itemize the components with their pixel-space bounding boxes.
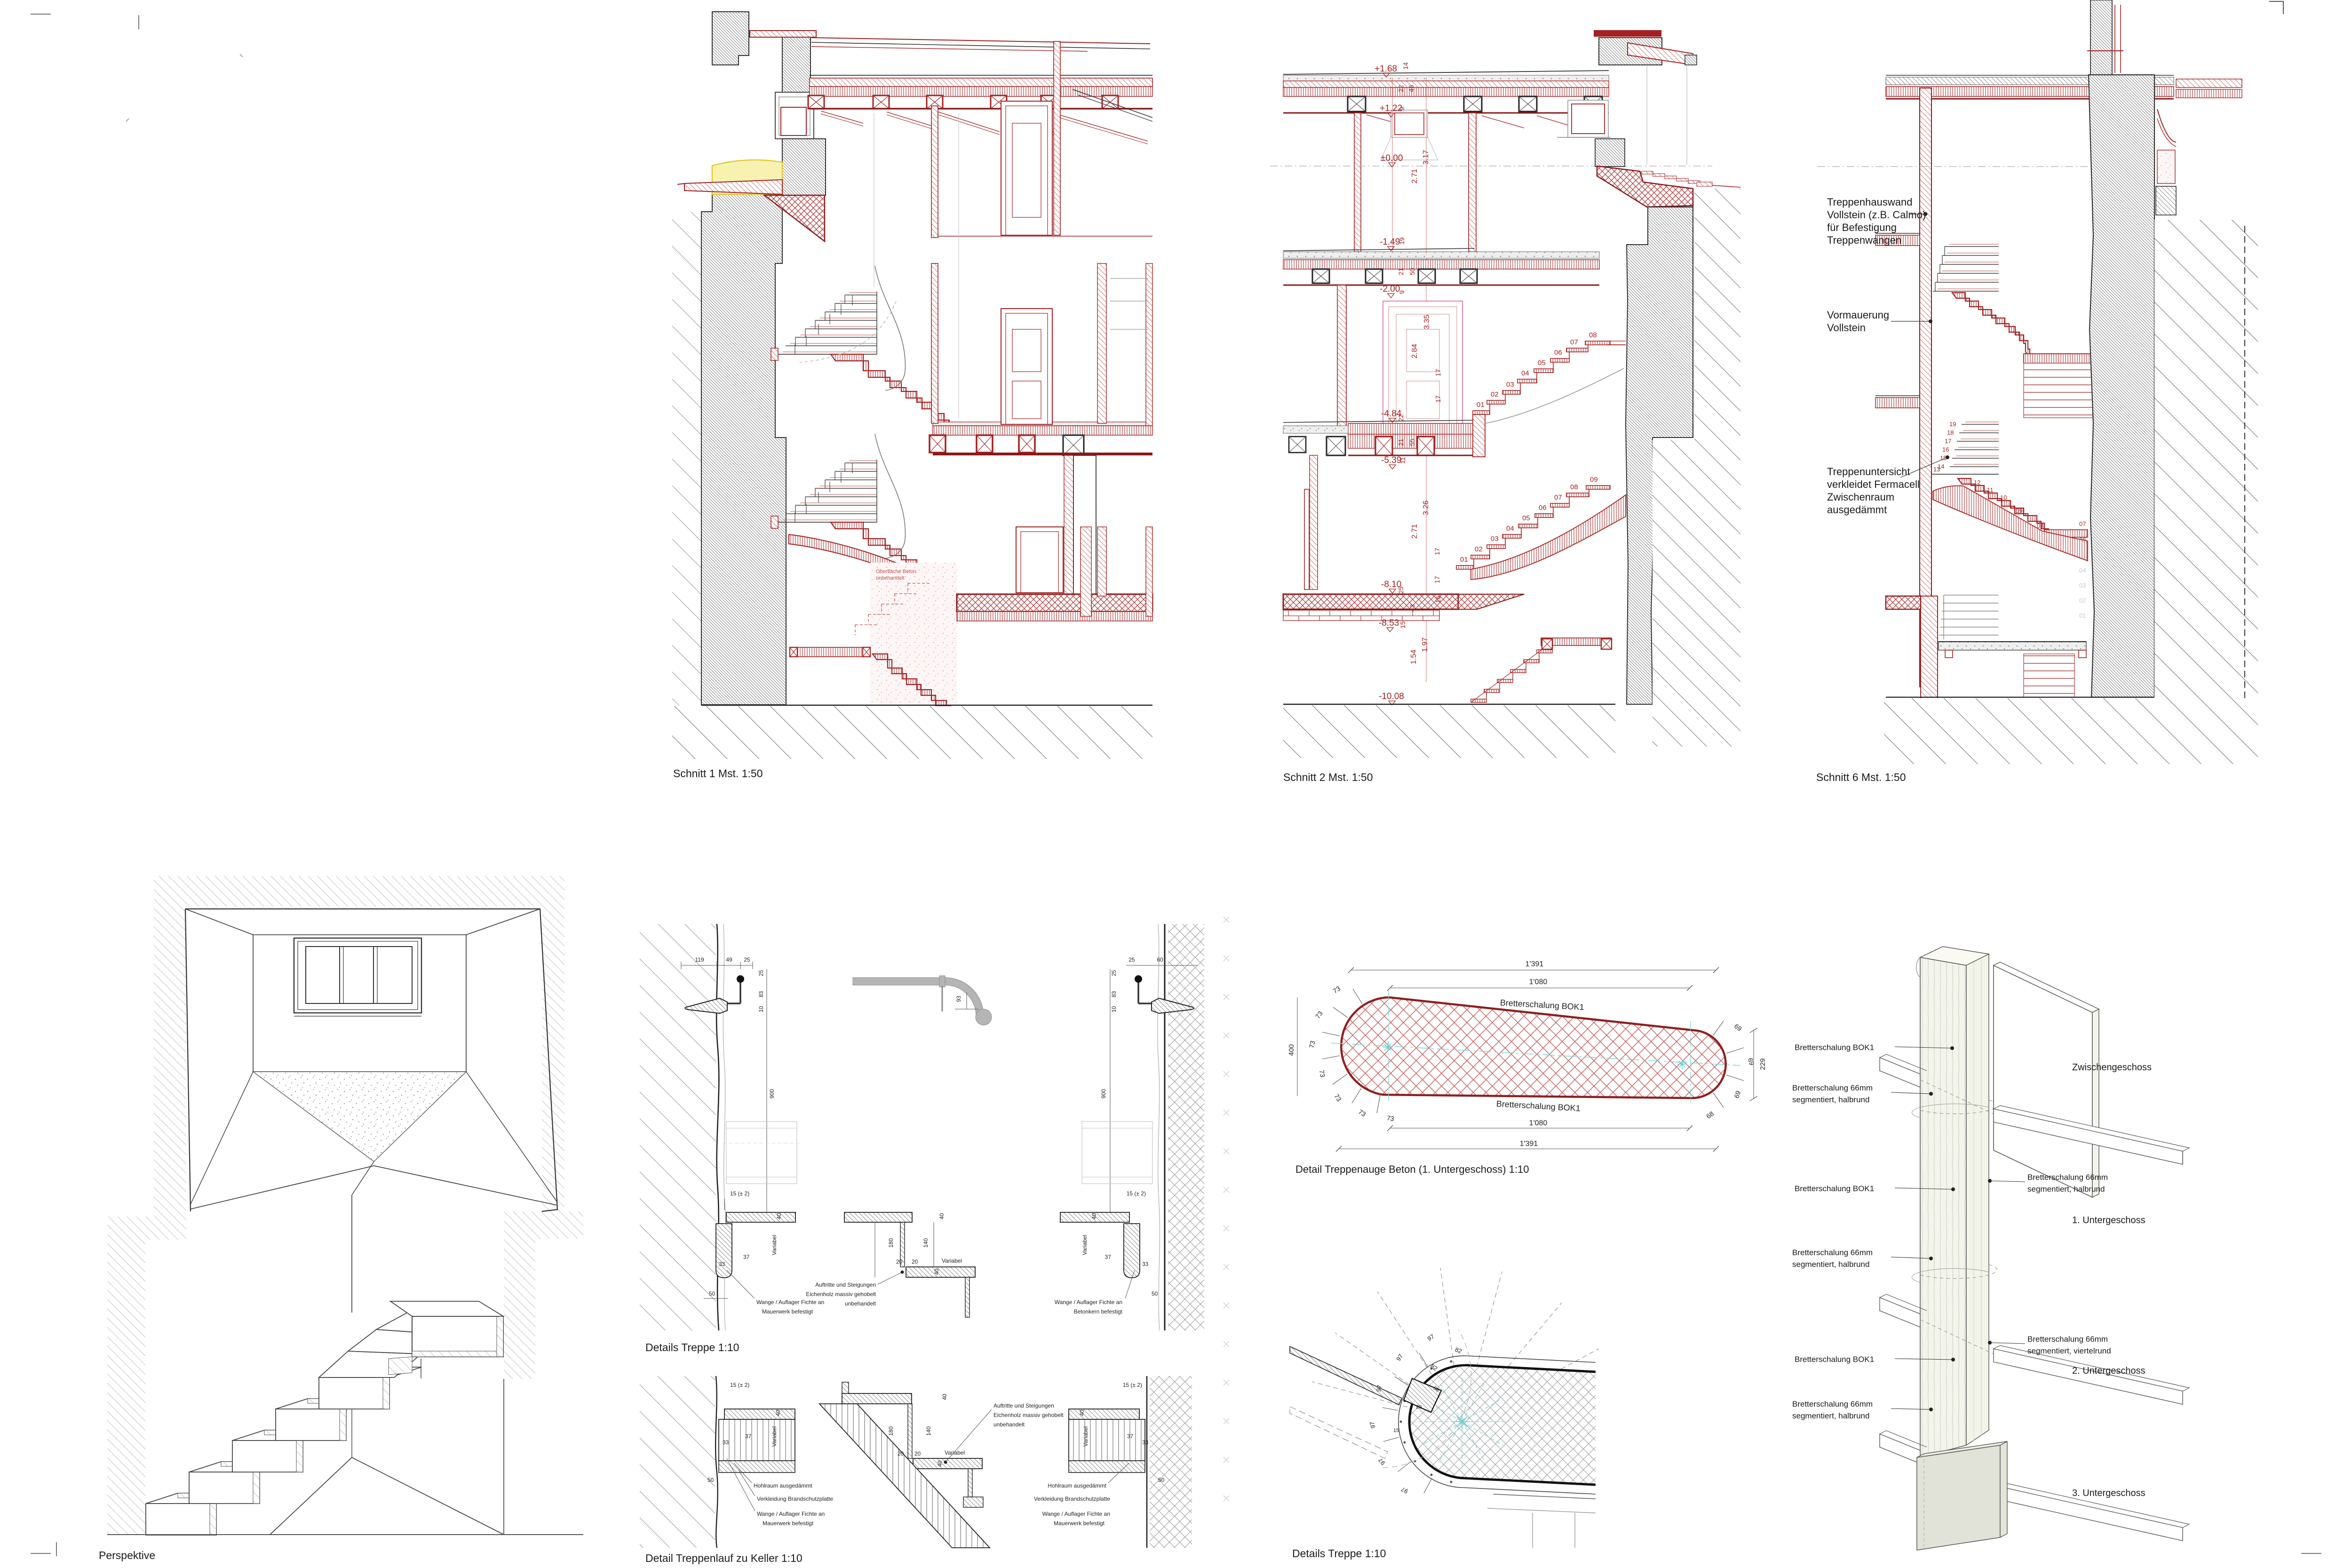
svg-text:04: 04: [2079, 567, 2086, 574]
svg-text:segmentiert, halbrund: segmentiert, halbrund: [1792, 1411, 1869, 1420]
svg-text:Eichenholz massiv gehobelt: Eichenholz massiv gehobelt: [806, 1291, 876, 1297]
svg-text:11: 11: [1987, 486, 1994, 493]
svg-text:17: 17: [1433, 548, 1441, 555]
svg-text:33: 33: [1142, 1261, 1149, 1267]
svg-text:05: 05: [1522, 514, 1530, 522]
svg-text:06: 06: [1539, 504, 1547, 512]
svg-text:Schnitt 2 Mst. 1:50: Schnitt 2 Mst. 1:50: [1283, 771, 1373, 783]
svg-text:43: 43: [1408, 604, 1416, 612]
svg-text:01: 01: [1477, 401, 1485, 409]
svg-text:25: 25: [744, 956, 750, 963]
svg-text:07: 07: [1554, 493, 1562, 501]
svg-text:Details Treppe 1:10: Details Treppe 1:10: [645, 1341, 739, 1353]
svg-text:08: 08: [1570, 483, 1578, 491]
svg-text:01: 01: [2079, 612, 2086, 619]
svg-text:Eichenholz massiv gehobelt: Eichenholz massiv gehobelt: [993, 1412, 1064, 1418]
svg-text:01: 01: [1460, 556, 1468, 564]
svg-text:segmentiert, halbrund: segmentiert, halbrund: [1792, 1095, 1869, 1104]
svg-text:13: 13: [1933, 466, 1940, 473]
svg-text:229: 229: [1759, 1058, 1767, 1070]
svg-text:50: 50: [707, 1477, 714, 1483]
svg-text:Auftritte und Steigungen: Auftritte und Steigungen: [993, 1402, 1054, 1409]
svg-text:Schnitt 1 Mst. 1:50: Schnitt 1 Mst. 1:50: [673, 767, 763, 780]
svg-text:verkleidet Fermacell: verkleidet Fermacell: [1827, 478, 1920, 490]
svg-text:04: 04: [1521, 369, 1529, 377]
svg-text:Bretterschalung 66mm: Bretterschalung 66mm: [2027, 1173, 2108, 1182]
svg-text:Wange / Auflager Fichte an: Wange / Auflager Fichte an: [1055, 1299, 1122, 1305]
svg-text:50: 50: [1408, 268, 1416, 275]
svg-text:37: 37: [1105, 1254, 1112, 1260]
svg-text:Bretterschalung 66mm: Bretterschalung 66mm: [1792, 1083, 1873, 1092]
svg-text:08: 08: [1589, 331, 1597, 339]
svg-text:37: 37: [745, 1433, 752, 1440]
svg-text:50: 50: [1152, 1290, 1158, 1297]
svg-text:10: 10: [2000, 494, 2007, 501]
svg-text:Variabel: Variabel: [771, 1426, 778, 1447]
svg-text:Detail Treppenauge Beton (1. U: Detail Treppenauge Beton (1. Untergescho…: [1295, 1163, 1529, 1175]
svg-text:73: 73: [1386, 1114, 1395, 1122]
svg-text:15: 15: [1940, 454, 1947, 462]
svg-text:60: 60: [1157, 956, 1163, 963]
svg-text:Verkleidung Brandschutzplatte: Verkleidung Brandschutzplatte: [1034, 1496, 1110, 1502]
svg-text:04: 04: [1506, 525, 1514, 533]
svg-text:180: 180: [888, 1426, 894, 1436]
svg-text:14: 14: [1402, 62, 1409, 70]
svg-text:19: 19: [1398, 237, 1406, 245]
svg-text:Bretterschalung BOK1: Bretterschalung BOK1: [1795, 1355, 1874, 1364]
svg-text:05: 05: [1538, 359, 1546, 367]
svg-text:-1.49: -1.49: [1380, 237, 1400, 247]
svg-text:2. Untergeschoss: 2. Untergeschoss: [2072, 1366, 2145, 1376]
svg-text:40: 40: [1079, 1409, 1085, 1416]
svg-text:16: 16: [1942, 446, 1949, 453]
svg-text:97: 97: [1375, 1385, 1383, 1393]
svg-text:Wange / Auflager Fichte an: Wange / Auflager Fichte an: [756, 1299, 824, 1305]
svg-text:25: 25: [1111, 970, 1117, 976]
svg-text:40: 40: [775, 1409, 781, 1416]
svg-text:20: 20: [898, 1450, 904, 1457]
svg-text:3.35: 3.35: [1423, 315, 1431, 329]
svg-text:Variabel: Variabel: [771, 1235, 778, 1255]
svg-text:Wange / Auflager Fichte an: Wange / Auflager Fichte an: [757, 1511, 825, 1517]
svg-text:03: 03: [1491, 535, 1499, 543]
svg-text:3. Untergeschoss: 3. Untergeschoss: [2072, 1488, 2145, 1498]
svg-text:unbehandelt: unbehandelt: [993, 1421, 1025, 1428]
svg-text:22: 22: [1397, 414, 1405, 422]
svg-text:Treppenwangen: Treppenwangen: [1827, 234, 1901, 246]
svg-text:900: 900: [1100, 1089, 1107, 1098]
svg-text:Bretterschalung BOK1: Bretterschalung BOK1: [1795, 1184, 1874, 1193]
svg-text:segmentiert, halbrund: segmentiert, halbrund: [1792, 1260, 1869, 1269]
svg-text:19: 19: [1949, 421, 1956, 428]
svg-text:02: 02: [2079, 597, 2086, 604]
svg-text:21: 21: [1397, 268, 1405, 275]
svg-text:900: 900: [769, 1089, 775, 1098]
svg-text:07: 07: [1570, 338, 1578, 346]
svg-text:83: 83: [758, 991, 764, 997]
svg-text:unbehandelt: unbehandelt: [876, 575, 905, 581]
svg-text:93: 93: [955, 995, 962, 1002]
svg-text:33: 33: [1142, 1439, 1149, 1446]
svg-text:Perspektive: Perspektive: [99, 1549, 155, 1561]
svg-text:06: 06: [1554, 349, 1562, 357]
svg-text:20: 20: [1416, 1404, 1422, 1410]
svg-text:33: 33: [719, 1261, 725, 1267]
svg-text:03: 03: [1506, 381, 1514, 389]
svg-text:20: 20: [912, 1258, 918, 1265]
svg-text:15 (± 2): 15 (± 2): [1123, 1382, 1142, 1388]
svg-text:20: 20: [896, 1258, 903, 1265]
svg-text:-2.00: -2.00: [1380, 284, 1400, 294]
svg-text:Vollstein (z.B. Calmo): Vollstein (z.B. Calmo): [1827, 209, 1926, 221]
svg-text:Bretterschalung 66mm: Bretterschalung 66mm: [1792, 1400, 1873, 1409]
svg-text:73: 73: [1318, 1069, 1327, 1078]
svg-text:Mauerwerk befestigt: Mauerwerk befestigt: [762, 1308, 813, 1315]
svg-text:9: 9: [1398, 107, 1406, 111]
svg-text:55: 55: [1408, 438, 1416, 446]
svg-text:Bretterschalung BOK1: Bretterschalung BOK1: [1795, 1043, 1874, 1052]
svg-text:Bretterschalung 66mm: Bretterschalung 66mm: [2027, 1335, 2108, 1344]
svg-text:40: 40: [938, 1213, 945, 1219]
svg-text:50: 50: [709, 1290, 715, 1297]
svg-text:17: 17: [1434, 369, 1442, 376]
svg-text:Schnitt 6 Mst. 1:50: Schnitt 6 Mst. 1:50: [1816, 771, 1906, 783]
svg-text:Treppenuntersicht: Treppenuntersicht: [1827, 466, 1910, 478]
svg-text:16: 16: [1434, 596, 1442, 603]
svg-text:Hohlraum ausgedämmt: Hohlraum ausgedämmt: [1048, 1482, 1106, 1489]
svg-text:1'080: 1'080: [1529, 978, 1548, 986]
svg-text:Zwischenraum: Zwischenraum: [1827, 491, 1894, 503]
svg-text:140: 140: [925, 1426, 932, 1436]
svg-text:Zwischengeschoss: Zwischengeschoss: [2072, 1062, 2152, 1073]
svg-text:1.97: 1.97: [1421, 637, 1429, 652]
svg-text:Wange / Auflager Fichte an: Wange / Auflager Fichte an: [1042, 1511, 1110, 1517]
svg-text:3.17: 3.17: [1422, 150, 1430, 165]
svg-text:für Befestigung: für Befestigung: [1827, 222, 1897, 233]
svg-text:Bretterschalung 66mm: Bretterschalung 66mm: [1792, 1248, 1873, 1257]
svg-text:40: 40: [937, 1460, 943, 1467]
svg-text:Detail Treppenlauf zu Keller 1: Detail Treppenlauf zu Keller 1:10: [645, 1552, 803, 1564]
svg-text:40: 40: [933, 1268, 940, 1275]
svg-text:15: 15: [1399, 621, 1406, 629]
svg-text:09: 09: [1590, 476, 1598, 484]
svg-text:25: 25: [1128, 956, 1135, 963]
svg-text:Details Treppe 1:10: Details Treppe 1:10: [1292, 1547, 1386, 1560]
svg-text:18: 18: [1947, 429, 1954, 436]
svg-text:21: 21: [1397, 438, 1405, 446]
svg-text:unbehandelt: unbehandelt: [845, 1300, 876, 1307]
svg-text:15 (± 2): 15 (± 2): [730, 1190, 749, 1197]
svg-text:Vollstein: Vollstein: [1827, 322, 1866, 334]
svg-text:02: 02: [1475, 545, 1483, 553]
svg-text:1'391: 1'391: [1520, 1140, 1538, 1148]
svg-text:11: 11: [1399, 457, 1406, 464]
svg-text:15 (± 2): 15 (± 2): [730, 1382, 749, 1388]
svg-text:10: 10: [1111, 1006, 1117, 1012]
svg-text:Variabel: Variabel: [1082, 1426, 1089, 1447]
svg-text:37: 37: [743, 1254, 750, 1260]
svg-text:1'391: 1'391: [1526, 960, 1544, 968]
svg-text:25: 25: [758, 970, 764, 976]
svg-text:17: 17: [1945, 438, 1951, 445]
svg-text:140: 140: [922, 1238, 929, 1248]
svg-text:3.26: 3.26: [1422, 501, 1430, 515]
svg-text:Mauerwerk befestigt: Mauerwerk befestigt: [1054, 1520, 1105, 1527]
svg-text:33: 33: [723, 1439, 729, 1446]
svg-text:-5.39: -5.39: [1381, 455, 1401, 465]
svg-text:12: 12: [1974, 479, 1980, 486]
svg-text:Variabel: Variabel: [945, 1449, 965, 1456]
svg-text:46: 46: [1407, 85, 1415, 92]
svg-text:Mauerwerk befestigt: Mauerwerk befestigt: [763, 1520, 814, 1527]
svg-text:83: 83: [1111, 991, 1117, 997]
svg-text:Oberfläche Beton: Oberfläche Beton: [876, 569, 916, 574]
svg-text:Hohlraum ausgedämmt: Hohlraum ausgedämmt: [754, 1482, 812, 1489]
svg-text:20: 20: [914, 1450, 921, 1457]
svg-text:10: 10: [758, 1006, 764, 1012]
svg-text:50: 50: [1158, 1477, 1165, 1483]
svg-text:40: 40: [776, 1213, 782, 1219]
svg-text:ausgedämmt: ausgedämmt: [1827, 504, 1887, 516]
svg-text:Betonkern befestigt: Betonkern befestigt: [1074, 1308, 1123, 1315]
svg-text:-8.53: -8.53: [1379, 618, 1399, 628]
svg-text:17: 17: [1433, 576, 1441, 583]
svg-text:17: 17: [1434, 395, 1442, 403]
svg-text:Variabel: Variabel: [942, 1258, 962, 1264]
svg-text:49: 49: [726, 956, 732, 963]
svg-text:1.54: 1.54: [1410, 650, 1418, 664]
svg-text:22: 22: [1397, 85, 1405, 92]
svg-text:15: 15: [1393, 1428, 1399, 1433]
svg-text:2.71: 2.71: [1411, 524, 1419, 539]
svg-text:Vormauerung: Vormauerung: [1827, 309, 1889, 321]
svg-text:03: 03: [2079, 582, 2086, 589]
svg-text:07: 07: [2079, 520, 2086, 527]
svg-text:180: 180: [888, 1238, 894, 1248]
svg-text:Treppenhauswand: Treppenhauswand: [1827, 196, 1912, 208]
svg-text:segmentiert, viertelrund: segmentiert, viertelrund: [2027, 1346, 2111, 1355]
svg-text:-10.08: -10.08: [1379, 692, 1404, 701]
svg-text:1'080: 1'080: [1529, 1119, 1548, 1127]
svg-text:segmentiert, halbrund: segmentiert, halbrund: [2027, 1185, 2105, 1194]
svg-text:25: 25: [1397, 586, 1405, 594]
svg-text:02: 02: [1491, 390, 1499, 398]
svg-text:40: 40: [1091, 1213, 1097, 1219]
svg-text:400: 400: [1287, 1044, 1295, 1056]
svg-text:+1.68: +1.68: [1375, 64, 1397, 74]
svg-text:Variabel: Variabel: [1081, 1235, 1088, 1255]
svg-text:2.71: 2.71: [1411, 169, 1419, 183]
svg-text:Auftritte und Steigungen: Auftritte und Steigungen: [815, 1281, 876, 1288]
svg-text:Verkleidung Brandschutzplatte: Verkleidung Brandschutzplatte: [757, 1496, 833, 1502]
svg-text:15 (± 2): 15 (± 2): [1127, 1190, 1146, 1197]
svg-text:40: 40: [941, 1393, 948, 1400]
svg-text:1. Untergeschoss: 1. Untergeschoss: [2072, 1215, 2145, 1226]
svg-text:9: 9: [1398, 290, 1406, 294]
svg-text:2.84: 2.84: [1411, 344, 1419, 358]
svg-text:09: 09: [2016, 507, 2022, 514]
svg-text:37: 37: [1127, 1433, 1134, 1440]
svg-text:119: 119: [695, 956, 704, 963]
svg-text:±0.00: ±0.00: [1381, 153, 1403, 163]
